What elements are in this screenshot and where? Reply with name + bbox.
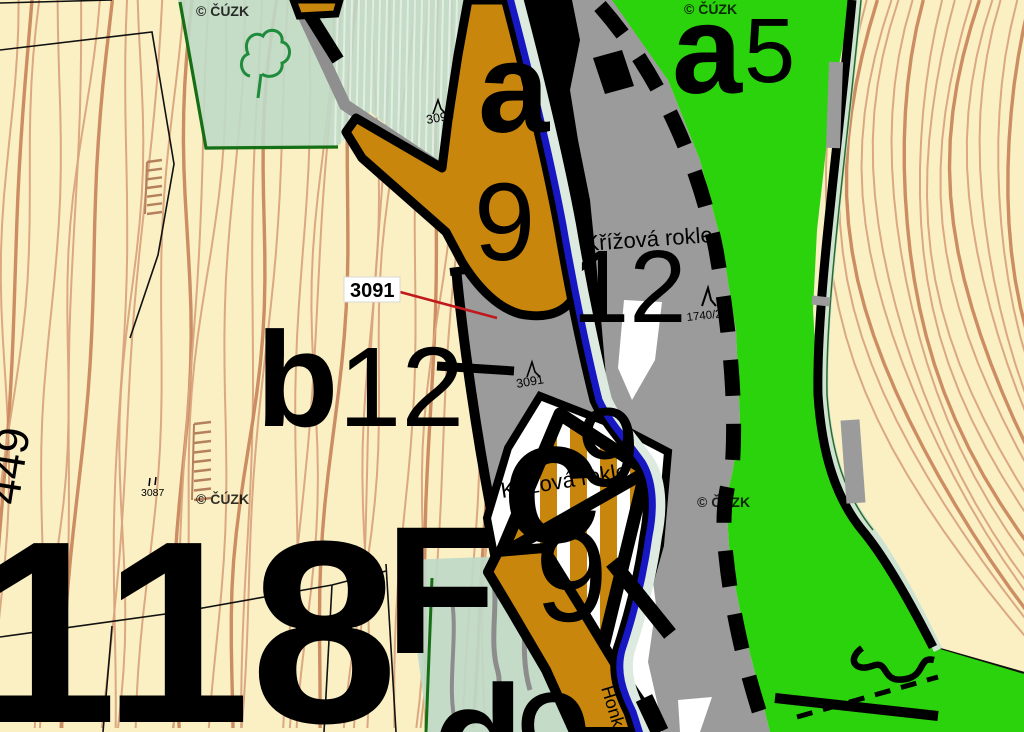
- stand-label-9: 9: [535, 502, 608, 649]
- stand-label-b12: b12: [256, 304, 464, 455]
- b12-leader-line: [437, 366, 514, 371]
- stand-label-12: 12: [572, 229, 687, 344]
- map-canvas[interactable]: © ČÚZK © ČÚZK © ČÚZK © ČÚZK 449 a 9 a5 K…: [0, 0, 1024, 732]
- stand-label-a9-letter: a: [478, 17, 550, 160]
- highlight-label: 3091: [350, 280, 395, 302]
- stand-label-a9-number: 9: [474, 161, 535, 284]
- stand-label-d9: d9: [432, 654, 593, 732]
- compartment-label-118: 118: [0, 488, 398, 732]
- stand-brown-top-piece: [293, 0, 340, 16]
- cuzk-watermark: © ČÚZK: [196, 2, 249, 19]
- cuzk-watermark: © ČÚZK: [697, 493, 750, 510]
